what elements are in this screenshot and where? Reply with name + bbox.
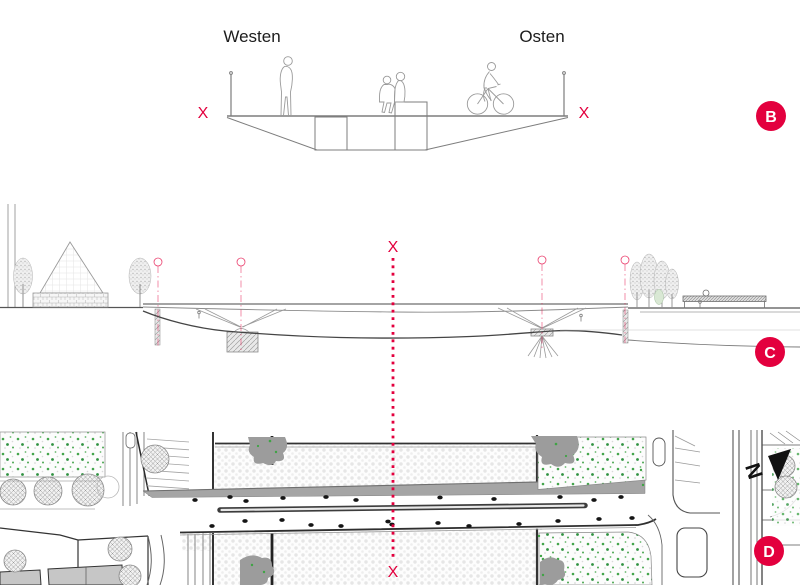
bridge-deck-plan	[140, 491, 660, 534]
panel-d-site-plan: N D	[0, 430, 800, 585]
section-marker-b-right: X	[579, 105, 590, 122]
canopy-structure	[683, 290, 766, 309]
architectural-drawing-sheet: Westen Osten X X	[0, 0, 800, 585]
pyramid-building	[33, 242, 108, 307]
badge-b: B	[756, 101, 786, 131]
abutment-right	[623, 310, 628, 343]
street-right	[648, 430, 757, 585]
elevation-trees-right	[630, 254, 679, 308]
section-marker-b-left: X	[198, 105, 209, 122]
lawn-top-left	[0, 432, 105, 477]
mast	[8, 204, 15, 307]
axis-marker-icons	[154, 256, 629, 266]
badge-d-letter: D	[763, 544, 775, 561]
drawing-canvas: Westen Osten X X	[0, 0, 800, 585]
sitting-people-silhouette	[380, 72, 406, 113]
panel-c-elevation: C	[0, 204, 800, 367]
bridge-deck-section	[227, 72, 568, 150]
section-marker-c-top: X	[388, 239, 399, 256]
badge-d: D	[754, 536, 784, 566]
cyclist-silhouette	[467, 63, 513, 115]
tree	[141, 445, 169, 473]
bridge-deck-elevation	[143, 304, 628, 312]
tree-row-left	[0, 474, 119, 506]
label-westen: Westen	[223, 27, 280, 46]
abutment-left	[155, 309, 160, 345]
badge-c: C	[755, 337, 785, 367]
standing-person-silhouette	[280, 57, 292, 116]
north-label: N	[740, 460, 767, 482]
badge-b-letter: B	[765, 109, 777, 126]
label-osten: Osten	[519, 27, 564, 46]
quay-ramp	[182, 533, 213, 551]
panel-b-cross-section: Westen Osten X X	[198, 27, 786, 150]
badge-c-letter: C	[764, 345, 776, 362]
section-marker-d-bottom: X	[388, 564, 399, 581]
